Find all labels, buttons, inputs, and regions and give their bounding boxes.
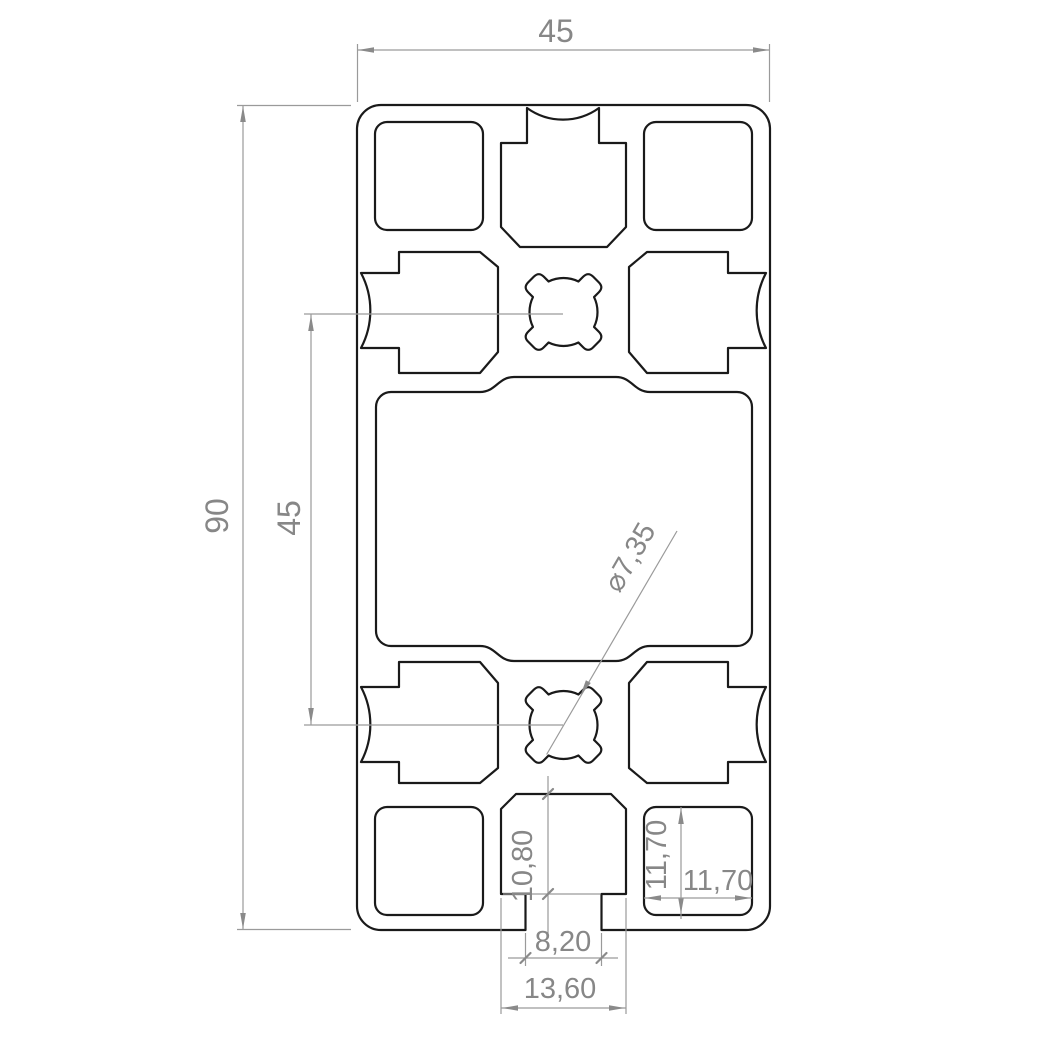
- arrow-up-icon: [308, 315, 314, 331]
- cavity-square-top-left: [375, 122, 483, 230]
- cavity-top-center: [501, 108, 626, 247]
- cavity-square-bottom-left: [375, 807, 483, 915]
- arrow-up-icon: [678, 808, 684, 824]
- arrow-left-icon: [645, 895, 661, 901]
- arrow-down-icon: [308, 708, 314, 724]
- arrow-down-icon: [240, 913, 246, 929]
- arrow-left-icon: [502, 1005, 518, 1011]
- dim-label-slot-cavity-width: 13,60: [524, 973, 597, 1005]
- dimension-port-spacing: 45: [271, 314, 563, 725]
- arrow-right-icon: [609, 1005, 625, 1011]
- arrow-up-icon: [240, 106, 246, 122]
- dim-label-width-top: 45: [538, 13, 574, 49]
- dim-label-square-cavity-height: 11,70: [641, 820, 673, 890]
- dim-label-slot-opening-width: 8,20: [535, 926, 591, 958]
- dim-label-port-spacing: 45: [271, 500, 307, 536]
- cavity-finger-lower-right: [629, 662, 766, 783]
- arrow-right-icon: [753, 47, 769, 53]
- drawing-canvas: 45 90 45 ⌀7,35 10,80 11,70: [0, 0, 1063, 1043]
- dimension-square-cavity-height: 11,70: [641, 807, 684, 919]
- dim-label-height-left: 90: [199, 498, 235, 534]
- dimension-slot-cavity-height: 10,80: [503, 776, 600, 938]
- arrow-down-icon: [678, 898, 684, 914]
- dim-label-core-hole: ⌀7,35: [598, 517, 663, 597]
- dimension-core-hole: ⌀7,35: [547, 517, 677, 754]
- profile-cross-section: [357, 105, 770, 930]
- screw-port-upper: [526, 274, 602, 350]
- dim-label-slot-cavity-height: 10,80: [507, 830, 539, 903]
- dimension-slot-opening-width: 8,20: [508, 926, 618, 966]
- cavity-finger-upper-right: [629, 252, 766, 373]
- cavity-central: [376, 377, 752, 661]
- cavity-finger-upper-left: [361, 252, 498, 373]
- dim-label-square-cavity-width: 11,70: [683, 865, 753, 897]
- profile-technical-drawing: 45 90 45 ⌀7,35 10,80 11,70: [0, 0, 1063, 1043]
- cavity-finger-lower-left: [361, 662, 498, 783]
- arrow-left-icon: [358, 47, 374, 53]
- dimension-width-top: 45: [358, 13, 770, 102]
- cavity-square-top-right: [644, 122, 752, 230]
